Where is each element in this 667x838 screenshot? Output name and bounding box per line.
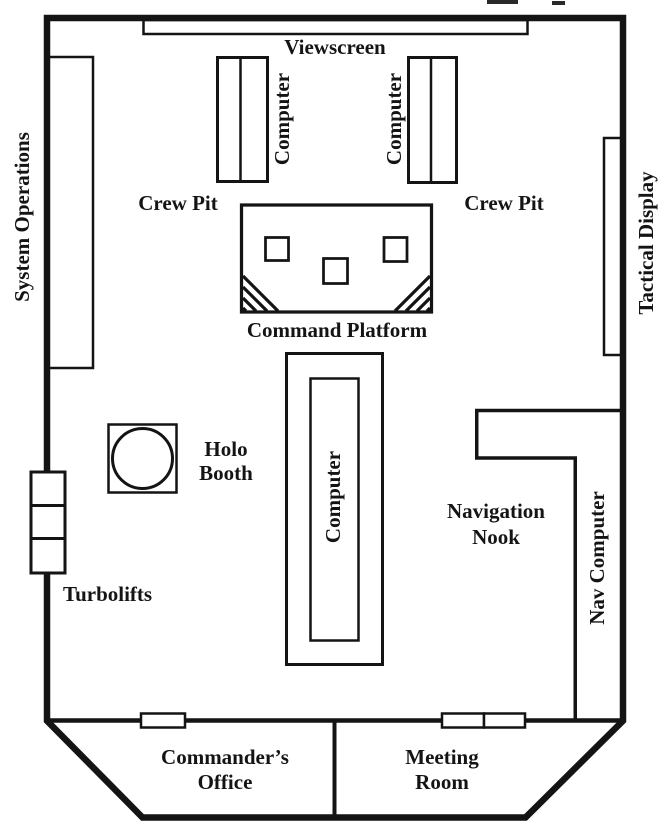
nav-computer-label: Nav Computer	[586, 476, 608, 640]
turbolift-shapes	[31, 472, 65, 573]
platform-seat-left	[266, 238, 289, 261]
platform-seat-right	[384, 238, 407, 262]
computer-top-right-shape	[409, 58, 457, 183]
commanders-office-label: Commander’s Office	[135, 745, 315, 795]
viewscreen-shape	[144, 20, 528, 34]
computer-center-label: Computer	[322, 437, 344, 557]
computer-top-right-label: Computer	[383, 59, 405, 179]
meeting-room-door-right	[484, 714, 525, 728]
tactical-display-label: Tactical Display	[635, 155, 657, 331]
holo-booth-shape	[109, 425, 177, 493]
system-operations-console-shape	[48, 57, 93, 368]
crew-pit-left-label: Crew Pit	[118, 192, 238, 214]
command-platform-shape	[242, 205, 432, 312]
turbolifts-label: Turbolifts	[63, 583, 152, 605]
crew-pit-right-label: Crew Pit	[444, 192, 564, 214]
computer-top-left-shape	[218, 58, 268, 182]
platform-seat-center	[324, 259, 348, 284]
bridge-floor-plan: Viewscreen Crew Pit Crew Pit Command Pla…	[0, 0, 667, 838]
navigation-nook-label: Navigation Nook	[426, 498, 566, 550]
command-platform-label: Command Platform	[237, 319, 437, 341]
viewscreen-label: Viewscreen	[235, 36, 435, 58]
commanders-office-door	[141, 714, 185, 728]
floor-plan-drawing	[0, 0, 667, 838]
meeting-room-label: Meeting Room	[372, 745, 512, 795]
meeting-room-door-left	[442, 714, 484, 728]
system-operations-label: System Operations	[11, 117, 33, 317]
holo-booth-label: Holo Booth	[176, 437, 276, 485]
computer-top-left-label: Computer	[271, 59, 293, 179]
scan-artifact	[487, 0, 518, 4]
scan-artifact	[552, 1, 565, 5]
